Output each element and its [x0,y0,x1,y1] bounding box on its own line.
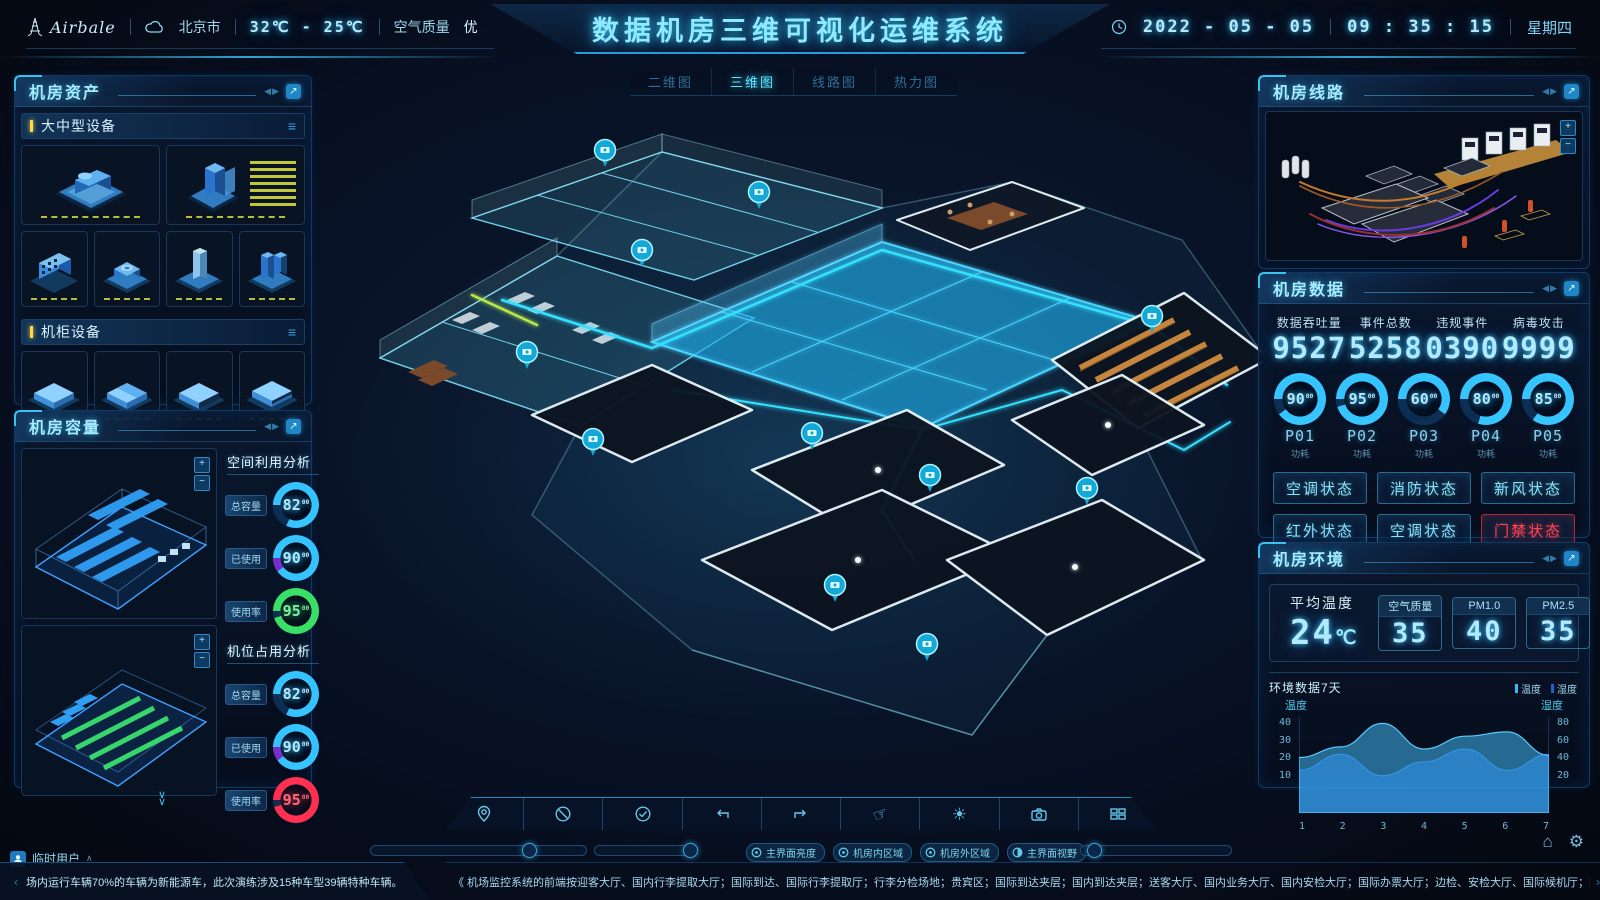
home-icon[interactable]: ⌂ [1542,832,1552,852]
tile-caption-dashes [104,298,150,300]
ticker-left-text: 场内运行车辆70%的车辆为新能源车，此次演练涉及15种车型39辆特种车辆。 [26,874,403,890]
power-gauge-p02: 9500 P02功耗 [1331,373,1393,460]
footer-ticker-bar: ‹ 场内运行车辆70%的车辆为新能源车，此次演练涉及15种车型39辆特种车辆。 … [0,862,1600,900]
twin-cabinets-3d-icon [243,241,301,297]
room-wireframe-svg [22,449,216,616]
section-rack-equipment[interactable]: 机柜设备 ≡ [21,319,305,345]
decor-line [1353,284,1534,293]
chip-room-inner-area[interactable]: 机房内区域 [833,843,912,862]
logo: Airbale [26,17,116,37]
tower-logo-icon [26,17,44,37]
ticker-left-box: ‹ 场内运行车辆70%的车辆为新能源车，此次演练涉及15种车型39辆特种车辆。 [0,862,430,900]
city-label[interactable]: 北京市 [179,17,221,37]
view-toggle-chips: 主界面亮度 机房内区域 机房外区域 主界面视野 [746,843,1086,862]
asset-tile-building[interactable] [21,231,88,307]
section-large-equipment[interactable]: 大中型设备 ≡ [21,113,305,139]
menu-icon[interactable]: ≡ [288,324,296,340]
collapse-arrows-icon[interactable]: ◀▶ [1542,553,1558,564]
section-label: 机柜设备 [41,322,280,342]
status-led-grid [250,160,296,206]
zoom-in-button[interactable]: + [194,634,210,650]
header-datetime-group: 2022 - 05 - 05 09 : 35 : 15 星期四 [1101,12,1576,49]
power-gauge-p05: 8500 P05功耗 [1517,373,1579,460]
asset-tile-ac-unit[interactable] [94,231,161,307]
left-axis-ticks: 4030 2010 [1279,717,1291,781]
toggle-dot-icon [838,847,849,858]
right-axis-label: 湿度 [1541,697,1563,713]
undo-arrow-icon [713,805,731,823]
section-tick [30,326,33,338]
cabling-3d-svg [1266,112,1582,258]
fresh-air-status-button[interactable]: 新风状态 [1481,472,1575,504]
stat-virus-attacks: 病毒攻击9999 [1501,314,1578,365]
panel-expand-button[interactable]: ↗ [286,84,301,99]
header-weather-group: Airbale 北京市 32℃ - 25℃ 空气质量 优 [26,12,494,49]
gauge-row: 使用率 9500 [225,588,319,634]
asset-tile-twin-cabinets[interactable] [239,231,306,307]
settings-gear-icon[interactable]: ⚙ [1569,832,1584,852]
3d-machine-room-view[interactable] [322,90,1262,796]
gauge-used: 9000 [273,535,319,581]
asset-tile-generator[interactable] [21,145,160,225]
brightness-tool[interactable]: ☀ [920,798,999,830]
pm25-metric: PM2.535 [1526,597,1590,649]
environment-panel: 机房环境 ◀▶ ↗ 平均温度 24℃ 空气质量35 [1258,542,1590,788]
capacity-panel-title: 机房容量 [29,414,101,438]
title-banner: 数据机房三维可视化运维系统 [490,4,1110,54]
date-value: 2022 - 05 - 05 [1143,17,1314,37]
tile-caption-dashes [41,216,140,218]
data-panel-title: 机房数据 [1273,276,1345,300]
logo-text: Airbale [50,18,116,37]
temp-range: 32℃ - 25℃ [250,18,365,36]
assets-panel-title: 机房资产 [29,79,101,103]
decor-line [109,87,256,96]
tile-caption-dashes [186,216,285,218]
zoom-out-button[interactable]: − [194,652,210,668]
room-wireframe-svg [22,626,216,793]
section-tick [30,120,33,132]
gauge-total-capacity: 8200 [273,482,319,528]
layout-tool[interactable] [1079,798,1157,830]
collapse-arrows-icon[interactable]: ◀▶ [1542,283,1558,294]
page-title: 数据机房三维可视化运维系统 [592,9,1008,48]
chart-title: 环境数据7天 [1269,681,1342,695]
power-gauge-p03: 6000 P03功耗 [1393,373,1455,460]
ticker-right-text: 《 机场监控系统的前端按迎客大厅、国内行李提取大厅；国际到达、国际行李提取厅；行… [453,874,1590,890]
fire-status-button[interactable]: 消防状态 [1377,472,1471,504]
server-slab-3d-icon [25,363,83,415]
asset-tile-cabinet-open[interactable] [166,145,305,225]
section-label: 大中型设备 [41,116,280,136]
ban-icon [554,805,572,823]
right-axis-ticks: 8060 4020 [1557,717,1569,781]
divider [235,19,236,35]
zoom-out-button[interactable]: − [1560,138,1576,154]
slider-handle[interactable] [1087,843,1102,858]
slot-analysis-title: 机位占用分析 [227,641,319,664]
decor-line [1353,554,1534,563]
server-slab-3d-icon [170,363,228,415]
rotation-slider[interactable] [1080,845,1232,856]
confirm-tool[interactable] [603,798,682,830]
check-circle-icon [634,805,652,823]
assets-panel: 机房资产 ◀▶ ↗ 大中型设备 ≡ [14,75,312,405]
snapshot-tool[interactable] [1000,798,1079,830]
divider [379,19,380,35]
decor-line [1100,56,1600,58]
data-panel: 机房数据 ◀▶ ↗ 数据吞吐量9527 事件总数5258 违规事件0390 病毒… [1258,272,1590,538]
redo-arrow-icon [792,805,810,823]
building-3d-icon [25,241,83,297]
cloud-icon [145,20,165,34]
slider-handle[interactable] [522,843,537,858]
stat-events: 事件总数5258 [1348,314,1425,365]
toggle-dot-icon [1012,847,1023,858]
redo-tool[interactable] [762,798,841,830]
camera-path-slider[interactable] [370,845,587,856]
gauge-row: 总容量 8200 [225,482,319,528]
gauge-used: 9000 [273,724,319,770]
tile-caption-dashes [176,298,222,300]
toggle-dot-icon [751,847,762,858]
gauge-usage-rate: 9500 [273,588,319,634]
legend-temperature[interactable]: 温度 [1515,681,1541,696]
air-quality-metric: 空气质量35 [1378,595,1442,651]
3d-floorplan [322,90,1262,796]
undo-tool[interactable] [683,798,762,830]
location-pin-icon [475,805,493,823]
air-quality-value: 优 [464,17,478,37]
stat-violations: 违规事件0390 [1424,314,1501,365]
divider [1510,19,1511,35]
panel-expand-button[interactable]: ↗ [1564,551,1579,566]
x-axis-labels: 123 456 7 [1299,821,1549,832]
power-gauge-p04: 8000 P04功耗 [1455,373,1517,460]
room-wireframe-view-1[interactable]: + − [21,448,217,619]
gauge-row: 已使用 9000 [225,724,319,770]
ac-status-button[interactable]: 空调状态 [1273,472,1367,504]
panel-expand-button[interactable]: ↗ [1564,281,1579,296]
tile-caption-dashes [31,298,77,300]
panel-expand-button[interactable]: ↗ [1564,84,1579,99]
ticker-right-box: 《 机场监控系统的前端按迎客大厅、国内行李提取大厅；国际到达、国际行李提取厅；行… [445,862,1600,900]
chip-main-viewport[interactable]: 主界面视野 [1007,843,1086,862]
asset-tile-tower-server[interactable] [166,231,233,307]
environment-chart: 环境数据7天 温度 湿度 温度 湿度 4030 2010 8060 4020 [1269,672,1579,863]
pm10-metric: PM1.040 [1452,597,1516,649]
area-chart-svg [1299,717,1549,813]
lines-panel: 机房线路 ◀▶ ↗ [1258,75,1590,269]
tower-server-3d-icon [170,241,228,297]
zoom-in-button[interactable]: + [194,457,210,473]
top-header: Airbale 北京市 32℃ - 25℃ 空气质量 优 数据机房三维可视化运维… [0,0,1600,60]
cabinet-3d-icon [181,154,245,216]
slider-handle[interactable] [683,843,698,858]
layout-grid-icon [1109,805,1127,823]
collapse-arrows-icon[interactable]: ◀▶ [264,421,280,432]
air-quality-label: 空气质量 [394,17,450,37]
ticker-prev-icon[interactable]: ‹ [14,875,18,889]
gauge-row: 总容量 8200 [225,671,319,717]
capacity-panel: 机房容量 ◀▶ ↗ [14,410,312,788]
ac-unit-3d-icon [98,241,156,297]
menu-icon[interactable]: ≡ [288,118,296,134]
collapse-arrows-icon[interactable]: ◀▶ [1542,86,1558,97]
weekday-label: 星期四 [1527,17,1572,38]
decor-line [109,422,256,431]
gauge-usage-rate: 9500 [273,777,319,823]
scene-toolbar: ☞ ☀ [445,797,1157,830]
gauge-row: 已使用 9000 [225,535,319,581]
zoom-in-button[interactable]: + [1560,120,1576,136]
power-gauges-row: 9000 P01功耗 9500 P02功耗 6000 P03功耗 8000 P0… [1259,367,1589,460]
collapse-arrows-icon[interactable]: ◀▶ [264,86,280,97]
dashboard: Airbale 北京市 32℃ - 25℃ 空气质量 优 数据机房三维可视化运维… [0,0,1600,900]
camera-icon [1030,805,1048,823]
panel-expand-button[interactable]: ↗ [286,419,301,434]
environment-summary: 平均温度 24℃ 空气质量35 PM1.040 PM2.535 [1269,584,1579,662]
corner-icons: ⌂ ⚙ [1542,832,1584,852]
pointer-tool[interactable]: ☞ [841,798,920,830]
locate-tool[interactable] [445,798,524,830]
divider [1330,19,1331,35]
divider [130,19,131,35]
legend-humidity[interactable]: 湿度 [1551,681,1577,696]
zoom-slider[interactable] [594,845,696,856]
decor-line [0,56,500,58]
clock-icon [1111,19,1127,35]
decor-line [1353,87,1534,96]
toggle-dot-icon [925,847,936,858]
tile-caption-dashes [249,298,295,300]
stat-throughput: 数据吞吐量9527 [1271,314,1348,365]
gauge-total-capacity: 8200 [273,671,319,717]
ticker-next-icon[interactable]: › [1596,875,1600,889]
server-slab-3d-icon [243,363,301,415]
average-temperature: 平均温度 24℃ [1290,593,1358,653]
brightness-icon: ☀ [952,806,967,823]
restrict-tool[interactable] [524,798,603,830]
chart-legend: 温度 湿度 [1515,681,1577,696]
stats-row: 数据吞吐量9527 事件总数5258 违规事件0390 病毒攻击9999 [1259,304,1589,367]
chip-main-brightness[interactable]: 主界面亮度 [746,843,825,862]
space-analysis-title: 空间利用分析 [227,452,319,475]
hand-pointer-icon: ☞ [870,803,891,825]
server-slab-3d-icon [98,363,156,415]
power-gauge-p01: 9000 P01功耗 [1269,373,1331,460]
zoom-out-button[interactable]: − [194,475,210,491]
environment-panel-title: 机房环境 [1273,546,1345,570]
chip-room-outer-area[interactable]: 机房外区域 [920,843,999,862]
gauge-row: 使用率 9500 [225,777,319,823]
cabling-3d-view[interactable]: + − [1265,111,1583,261]
generator-3d-icon [49,154,133,216]
time-value: 09 : 35 : 15 [1347,17,1494,37]
room-wireframe-view-2[interactable]: + − [21,625,217,796]
left-axis-label: 温度 [1285,697,1307,713]
lines-panel-title: 机房线路 [1273,79,1345,103]
scroll-down-chevrons[interactable]: ∨∨ [150,792,174,806]
